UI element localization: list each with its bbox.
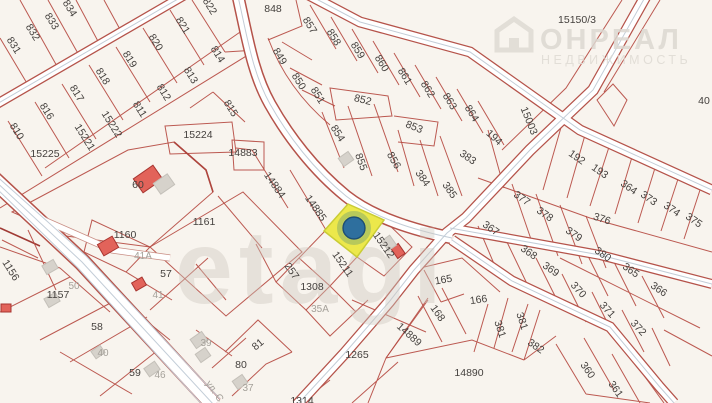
address-label: 41 [152, 290, 164, 301]
parcel-label: 81 [250, 336, 267, 353]
parcel-label: 375 [683, 211, 704, 231]
house-logo-icon [497, 19, 531, 50]
parcel-label: 855 [352, 152, 369, 173]
parcel-label: 814 [208, 44, 228, 65]
parcel-label: 15221 [72, 122, 98, 153]
parcel-label: 14884 [261, 170, 288, 201]
parcel-label: 379 [563, 225, 584, 245]
parcel-label: 15150/3 [558, 14, 596, 26]
building-shadow-icon [338, 151, 354, 166]
parcel-label: 372 [628, 317, 649, 338]
parcel-label: 822 [200, 0, 220, 17]
parcel-label: 854 [328, 123, 348, 144]
parcel-label: 815 [221, 98, 241, 119]
parcel-label: 820 [146, 32, 166, 53]
parcel-label: 831 [4, 35, 24, 56]
parcel-label: 40 [698, 95, 710, 107]
parcel-label: 369 [540, 260, 561, 280]
parcel-label: 861 [395, 66, 415, 87]
parcel-label: 853 [404, 118, 425, 136]
parcel-label: 858 [324, 27, 344, 48]
parcel-label: 14883 [228, 147, 257, 159]
parcel-label: 58 [91, 321, 103, 333]
parcel-label: 374 [661, 200, 682, 220]
parcel-label: 856 [384, 150, 403, 171]
parcel-label: 373 [638, 189, 659, 209]
parcel-label: 192 [566, 148, 587, 168]
parcel-label: 813 [181, 65, 201, 86]
parcel-label: 863 [440, 91, 460, 112]
parcel-label: 834 [60, 0, 80, 19]
parcel-label: 816 [37, 101, 57, 122]
parcel-label: 15222 [99, 109, 125, 140]
parcel-label: 14890 [454, 367, 483, 379]
parcel-label: 817 [67, 83, 87, 104]
parcel-label: 1157 [47, 289, 70, 301]
parcel-label: 864 [462, 103, 482, 124]
parcel-label: 832 [23, 22, 43, 43]
parcel-label: 859 [348, 40, 368, 61]
parcel-label: 370 [568, 279, 589, 300]
parcel-label: 1265 [345, 349, 369, 361]
parcel-label: 57 [160, 268, 172, 280]
parcel-label: 1160 [114, 229, 137, 241]
cadastral-map[interactable]: etagi ОНРЕАЛ НЕДВИЖИМОСТЬ 83483383283182… [0, 0, 712, 403]
parcel-label: 812 [154, 82, 174, 103]
parcel-label: 383 [457, 148, 478, 168]
parcel-label: 860 [372, 53, 392, 74]
parcel-label: 851 [308, 85, 328, 106]
parcel-label: 850 [289, 71, 309, 92]
address-label: 40 [97, 348, 109, 359]
parcel-label: 818 [93, 66, 113, 87]
parcel-marker-icon[interactable] [340, 214, 369, 243]
parcel-label: 193 [589, 162, 610, 182]
address-label: 37 [242, 383, 254, 394]
svg-text:ОНРЕАЛ: ОНРЕАЛ [540, 24, 682, 56]
address-label: 41А [134, 251, 152, 262]
parcel-label: 15225 [30, 148, 59, 160]
parcel-label: 381 [491, 319, 508, 340]
parcel-label: 60 [132, 179, 144, 191]
svg-text:НЕДВИЖИМОСТЬ: НЕДВИЖИМОСТЬ [541, 53, 691, 67]
parcel-label: 366 [648, 280, 669, 300]
parcel-label: 385 [440, 180, 460, 201]
parcel-label: 382 [525, 337, 546, 357]
parcel-label: 166 [469, 293, 488, 307]
parcel-label: 833 [42, 11, 62, 32]
parcel-label: 80 [235, 359, 247, 371]
address-label: 39 [200, 338, 212, 349]
parcel-label: 1156 [0, 258, 22, 284]
parcel-label: 381 [513, 311, 530, 332]
building-shadow-icon [195, 347, 211, 362]
parcel-label: 857 [300, 15, 320, 36]
address-label: 50 [68, 281, 80, 292]
parcel-label: 376 [592, 211, 613, 228]
building-icon [1, 304, 11, 312]
address-label: 46 [154, 370, 166, 381]
parcel-label: 165 [434, 273, 453, 288]
parcel-label: 852 [353, 92, 373, 108]
building-shadow-icon [42, 259, 58, 274]
cadastral-map-view[interactable]: etagi ОНРЕАЛ НЕДВИЖИМОСТЬ 83483383283182… [0, 0, 712, 403]
parcel-label: 819 [120, 49, 140, 70]
parcel-label: 821 [173, 15, 193, 36]
parcel-label: 378 [534, 205, 555, 225]
parcel-label: 194 [483, 127, 504, 148]
parcel-label: 811 [130, 99, 149, 120]
watermark-corner: ОНРЕАЛ НЕДВИЖИМОСТЬ [497, 19, 691, 67]
parcel-label: 15224 [183, 129, 212, 141]
parcel-label: 1161 [193, 216, 216, 228]
parcel-label: 848 [264, 3, 282, 15]
parcel-label: 59 [129, 367, 141, 379]
address-label: 35А [311, 304, 329, 315]
parcel-label: 360 [578, 360, 598, 381]
building-icon [132, 277, 147, 291]
parcel-label: 1308 [300, 281, 324, 293]
parcel-label: 1314 [290, 395, 314, 403]
